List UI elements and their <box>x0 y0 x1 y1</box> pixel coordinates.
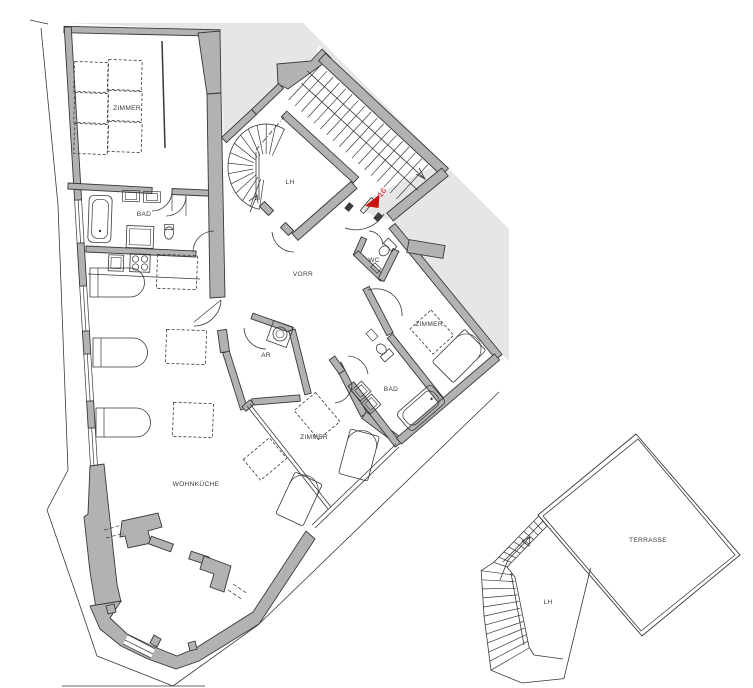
svg-text:WOHNKÜCHE: WOHNKÜCHE <box>173 480 220 488</box>
svg-text:LH: LH <box>285 179 294 186</box>
svg-text:AR: AR <box>261 352 271 359</box>
svg-text:LH: LH <box>543 599 552 606</box>
svg-text:ZIMMER: ZIMMER <box>113 105 141 112</box>
svg-text:ZIMMER: ZIMMER <box>415 321 443 328</box>
svg-text:VORR: VORR <box>293 271 313 278</box>
svg-text:BAD: BAD <box>137 211 151 218</box>
svg-text:BAD: BAD <box>384 386 398 393</box>
svg-text:TERRASSE: TERRASSE <box>629 537 667 544</box>
svg-text:WC: WC <box>368 257 380 264</box>
svg-text:ZIMMER: ZIMMER <box>300 434 328 441</box>
